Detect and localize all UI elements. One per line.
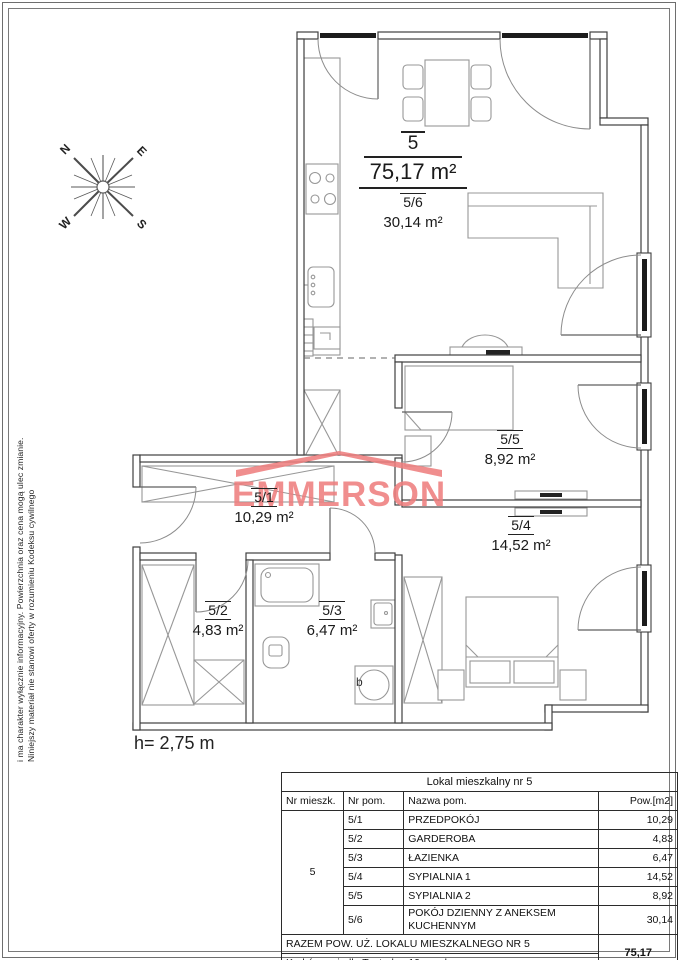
cell-room-name: POKÓJ DZIENNY Z ANEKSEM KUCHENNYM	[404, 906, 599, 935]
col-header-nazwa: Nazwa pom.	[404, 792, 599, 811]
apartment-area: 75,17 m²	[359, 158, 467, 189]
single-bed	[405, 366, 513, 430]
radiator	[304, 319, 313, 356]
room-54-area: 14,52 m²	[476, 537, 566, 554]
tv-cabinet	[450, 335, 522, 356]
apartment-number: 5	[401, 131, 426, 155]
room-51-number: 5/1	[251, 488, 276, 507]
corner-sofa	[468, 193, 603, 288]
col-header-pow: Pow.[m2]	[599, 792, 678, 811]
total-area: 75,17	[599, 935, 678, 960]
address-cell: Kraków, osiedle Teatralne 19 nr adresowy	[282, 954, 599, 960]
toilet	[263, 637, 289, 668]
room-53-number: 5/3	[319, 601, 344, 620]
cell-room-name: SYPIALNIA 1	[404, 868, 599, 887]
cell-room-no: 5/3	[343, 849, 403, 868]
room-53-label: 5/3 6,47 m²	[287, 601, 377, 639]
col-header-nr-mieszk: Nr mieszk.	[282, 792, 344, 811]
table-title-row: Lokal mieszkalny nr 5	[282, 773, 678, 792]
boiler-mark: b	[356, 675, 363, 689]
cell-room-area: 4,83	[599, 830, 678, 849]
vent-shaft	[304, 390, 340, 458]
room-54-label: 5/4 14,52 m²	[476, 516, 566, 554]
ceiling-height-note: h= 2,75 m	[134, 733, 215, 754]
boiler	[314, 327, 340, 349]
room-56-label: 5/6 30,14 m²	[340, 193, 486, 231]
room-56-number: 5/6	[400, 193, 425, 211]
window-bar	[642, 259, 647, 331]
room-55-label: 5/5 8,92 m²	[465, 430, 555, 468]
cell-room-area: 30,14	[599, 906, 678, 935]
double-bed	[466, 597, 558, 687]
room-53-area: 6,47 m²	[287, 622, 377, 639]
window-bar	[642, 571, 647, 626]
room-51-area: 10,29 m²	[219, 509, 309, 526]
cell-room-no: 5/2	[343, 830, 403, 849]
logo-roof-icon	[232, 451, 446, 477]
cell-room-area: 8,92	[599, 887, 678, 906]
cell-room-name: ŁAZIENKA	[404, 849, 599, 868]
total-label: RAZEM POW. UŻ. LOKALU MIESZKALNEGO NR 5	[282, 935, 599, 954]
table-header-row: Nr mieszk. Nr pom. Nazwa pom. Pow.[m2]	[282, 792, 678, 811]
table-row: 5 5/1 PRZEDPOKÓJ 10,29	[282, 811, 678, 830]
cell-room-no: 5/5	[343, 887, 403, 906]
apartment-number-row: 5	[364, 131, 462, 158]
cell-room-area: 6,47	[599, 849, 678, 868]
cell-room-no: 5/1	[343, 811, 403, 830]
apartment-no-cell: 5	[282, 811, 344, 935]
bathtub	[255, 564, 319, 606]
room-schedule-table: Lokal mieszkalny nr 5 Nr mieszk. Nr pom.…	[281, 772, 678, 960]
window-bar	[642, 389, 647, 444]
dining-table	[425, 60, 469, 126]
table-total-row: RAZEM POW. UŻ. LOKALU MIESZKALNEGO NR 5 …	[282, 935, 678, 954]
cell-room-name: PRZEDPOKÓJ	[404, 811, 599, 830]
room-51-label: 5/1 10,29 m²	[219, 488, 309, 526]
cell-room-name: GARDEROBA	[404, 830, 599, 849]
cell-room-area: 14,52	[599, 868, 678, 887]
cell-room-no: 5/6	[343, 906, 403, 935]
room-55-area: 8,92 m²	[465, 451, 555, 468]
col-header-nr-pom: Nr pom.	[343, 792, 403, 811]
room-54-number: 5/4	[508, 516, 533, 535]
bedroom-wardrobe	[404, 577, 442, 703]
stove	[306, 164, 338, 214]
table-title: Lokal mieszkalny nr 5	[282, 773, 678, 792]
cell-room-name: SYPIALNIA 2	[404, 887, 599, 906]
room-52-label: 5/2 4,83 m²	[173, 601, 263, 639]
room-52-area: 4,83 m²	[173, 622, 263, 639]
room-52-number: 5/2	[205, 601, 230, 620]
apartment-label: 5 75,17 m² 5/6 30,14 m²	[340, 131, 486, 231]
room-56-area: 30,14 m²	[340, 214, 486, 231]
floor-plan-sheet: i ma charakter wyłącznie informacyjny. P…	[0, 0, 678, 960]
window-bar	[502, 33, 588, 38]
room-55-number: 5/5	[497, 430, 522, 449]
window-bar	[320, 33, 376, 38]
cell-room-area: 10,29	[599, 811, 678, 830]
cell-room-no: 5/4	[343, 868, 403, 887]
